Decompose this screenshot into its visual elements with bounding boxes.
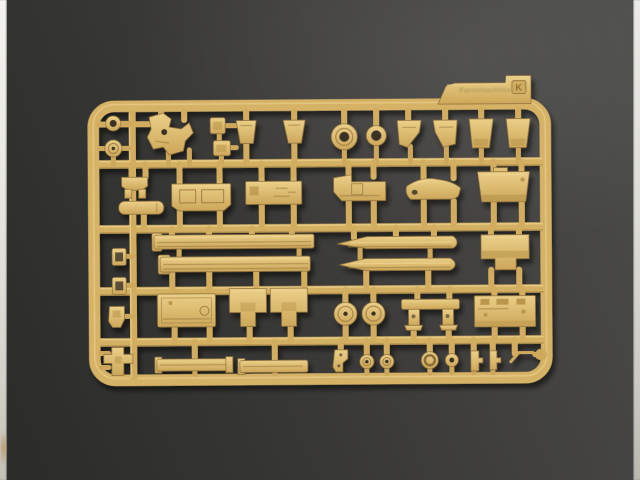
part-mudguard-right xyxy=(433,120,457,147)
part-hull-floor-panel xyxy=(172,184,231,211)
part-road-wheel-b xyxy=(362,302,385,325)
part-latch-box-b xyxy=(112,277,126,294)
part-clamp-b xyxy=(490,351,501,370)
part-towing-shackle xyxy=(108,306,124,327)
photo-edge-right xyxy=(633,0,640,480)
part-cradle-half-right xyxy=(339,258,455,271)
part-small-box-b xyxy=(213,141,230,156)
part-gun-mount-bench xyxy=(401,299,459,330)
tab-embossed-text-highlight: Panzerhaubitze xyxy=(459,86,511,93)
part-turret-ring-disc xyxy=(331,124,357,150)
part-stowage-box-panel xyxy=(246,181,302,204)
part-wheel-cap-ring xyxy=(421,352,438,369)
part-exhaust-cylinder xyxy=(119,201,164,214)
part-track-strip-b xyxy=(238,358,308,374)
photo-edge-left xyxy=(0,0,7,480)
part-suspension-bracket-right xyxy=(270,288,307,326)
sprue-photo: Panzerhaubitze Panzerhaubitze K xyxy=(0,0,640,480)
part-road-wheel-a xyxy=(334,302,357,325)
part-rear-plate xyxy=(477,168,529,202)
part-transmission-cover xyxy=(157,294,215,327)
part-idler-wheel-a xyxy=(360,355,374,369)
part-suspension-bracket-left xyxy=(229,288,266,326)
part-mudguard-left xyxy=(397,120,421,147)
part-trapezoid-plate-a xyxy=(236,120,256,143)
part-idler-wheel-b xyxy=(380,354,394,368)
part-hatch-plate xyxy=(474,295,535,326)
part-side-rail-b xyxy=(158,254,310,274)
part-clamp-a xyxy=(471,351,483,371)
photo-frame: Panzerhaubitze Panzerhaubitze K xyxy=(0,0,640,480)
part-glacis-plate xyxy=(334,175,386,201)
part-trapezoid-plate-b xyxy=(283,120,305,143)
part-bucket-plate-left xyxy=(469,119,493,148)
part-fender-section xyxy=(406,178,461,199)
sprue: Panzerhaubitze Panzerhaubitze K xyxy=(93,75,547,380)
part-side-rail-a xyxy=(152,232,314,251)
edge-smudge xyxy=(0,430,7,466)
part-lifting-hook xyxy=(333,350,348,372)
part-notched-housing xyxy=(481,235,529,270)
part-latch-box-a xyxy=(112,248,126,265)
part-large-ring xyxy=(366,126,386,146)
part-track-strip-a xyxy=(155,357,233,374)
part-bucket-plate-right xyxy=(506,119,530,148)
part-washer-disc xyxy=(445,354,458,367)
part-wheel-hub xyxy=(105,140,122,157)
part-small-box-a xyxy=(210,118,225,134)
tab-sprue-letter: K xyxy=(515,83,522,93)
part-small-ring xyxy=(106,116,121,131)
